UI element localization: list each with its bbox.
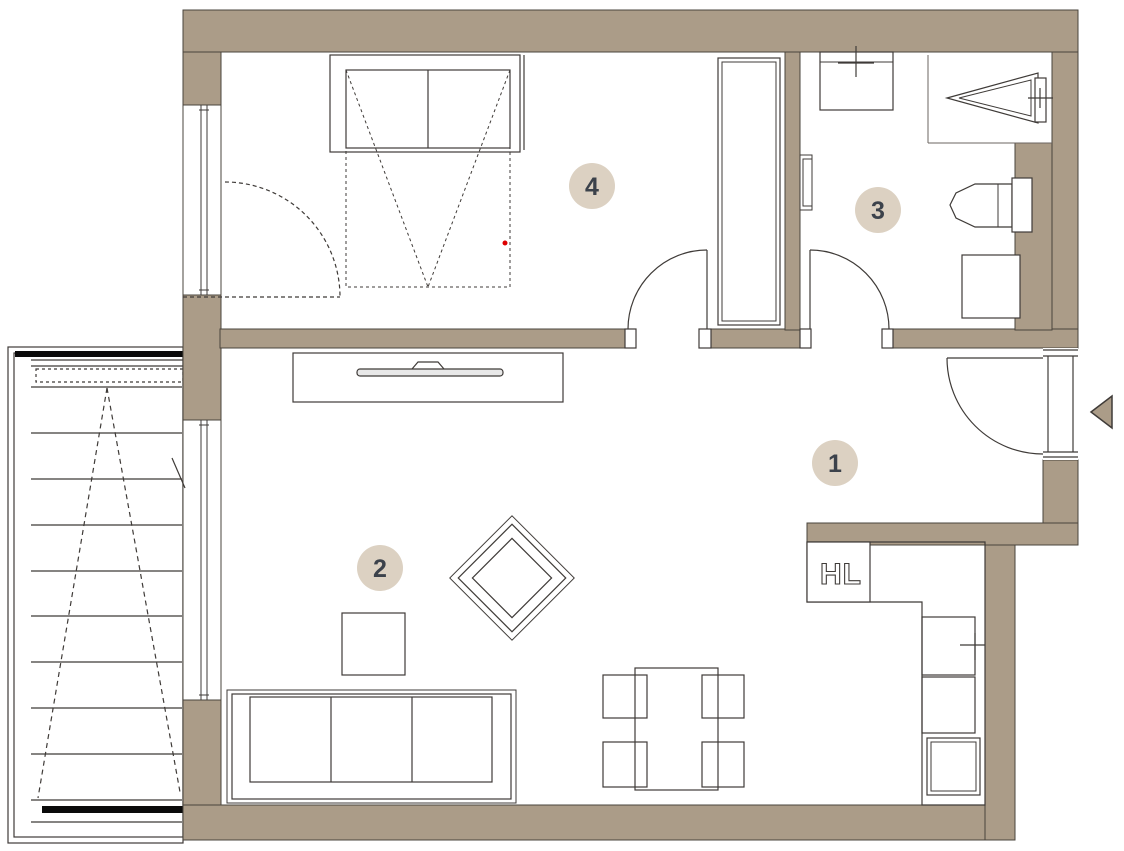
svg-text:4: 4 <box>585 173 599 201</box>
room-label-1: 1 <box>812 440 858 486</box>
wall-top <box>183 10 1078 52</box>
wall-interior-c <box>893 329 1078 348</box>
svg-text:1: 1 <box>828 450 842 478</box>
wall-left-middle <box>183 295 221 420</box>
toilet-cistern <box>1012 178 1032 232</box>
floor-plan-canvas: HL <box>0 0 1124 851</box>
room-label-4: 4 <box>569 163 615 209</box>
bedroom-window <box>183 105 221 295</box>
wall-left-upper <box>183 52 221 105</box>
sink <box>820 46 893 110</box>
wall-bottom <box>183 805 1015 840</box>
stair-top-bar <box>15 351 183 357</box>
svg-text:2: 2 <box>373 555 387 583</box>
room-label-3: 3 <box>855 187 901 233</box>
wall-right-lower <box>985 545 1015 840</box>
red-marker-dot <box>503 241 508 246</box>
svg-text:3: 3 <box>871 197 885 225</box>
room-label-2: 2 <box>357 545 403 591</box>
tv-icon <box>357 369 503 376</box>
wall-divider-bed-bath <box>785 52 800 330</box>
wall-interior-b <box>710 329 800 348</box>
background <box>0 0 1124 851</box>
wall-right-upper <box>1052 52 1078 330</box>
wall-interior-a <box>220 329 625 348</box>
stair-bottom-bar <box>42 806 183 813</box>
shower-tray-square <box>962 255 1020 318</box>
floor-plan: HL <box>0 0 1124 851</box>
shaft-label: HL <box>820 558 862 591</box>
